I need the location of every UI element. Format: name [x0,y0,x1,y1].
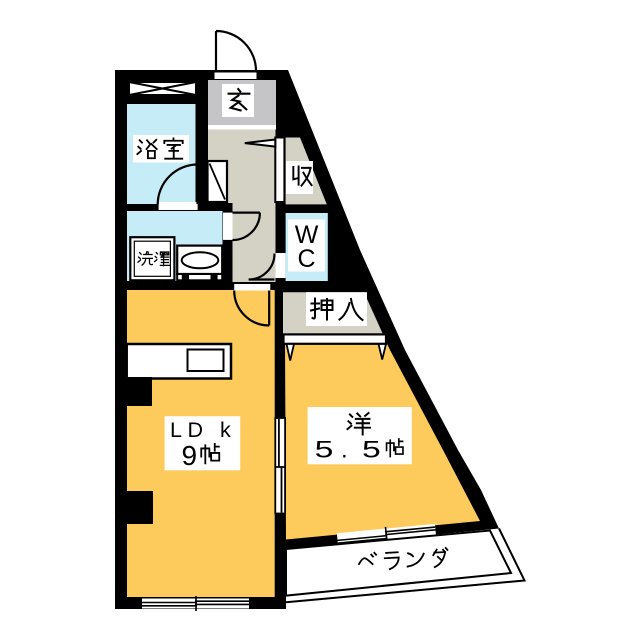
svg-text:5: 5 [362,437,381,464]
svg-text:L: L [170,418,182,442]
svg-text:5: 5 [315,437,334,464]
svg-text:k: k [220,418,231,442]
svg-text:9: 9 [182,440,198,471]
svg-text:.: . [341,437,348,464]
svg-text:C: C [297,245,315,273]
svg-text:D: D [188,418,204,442]
